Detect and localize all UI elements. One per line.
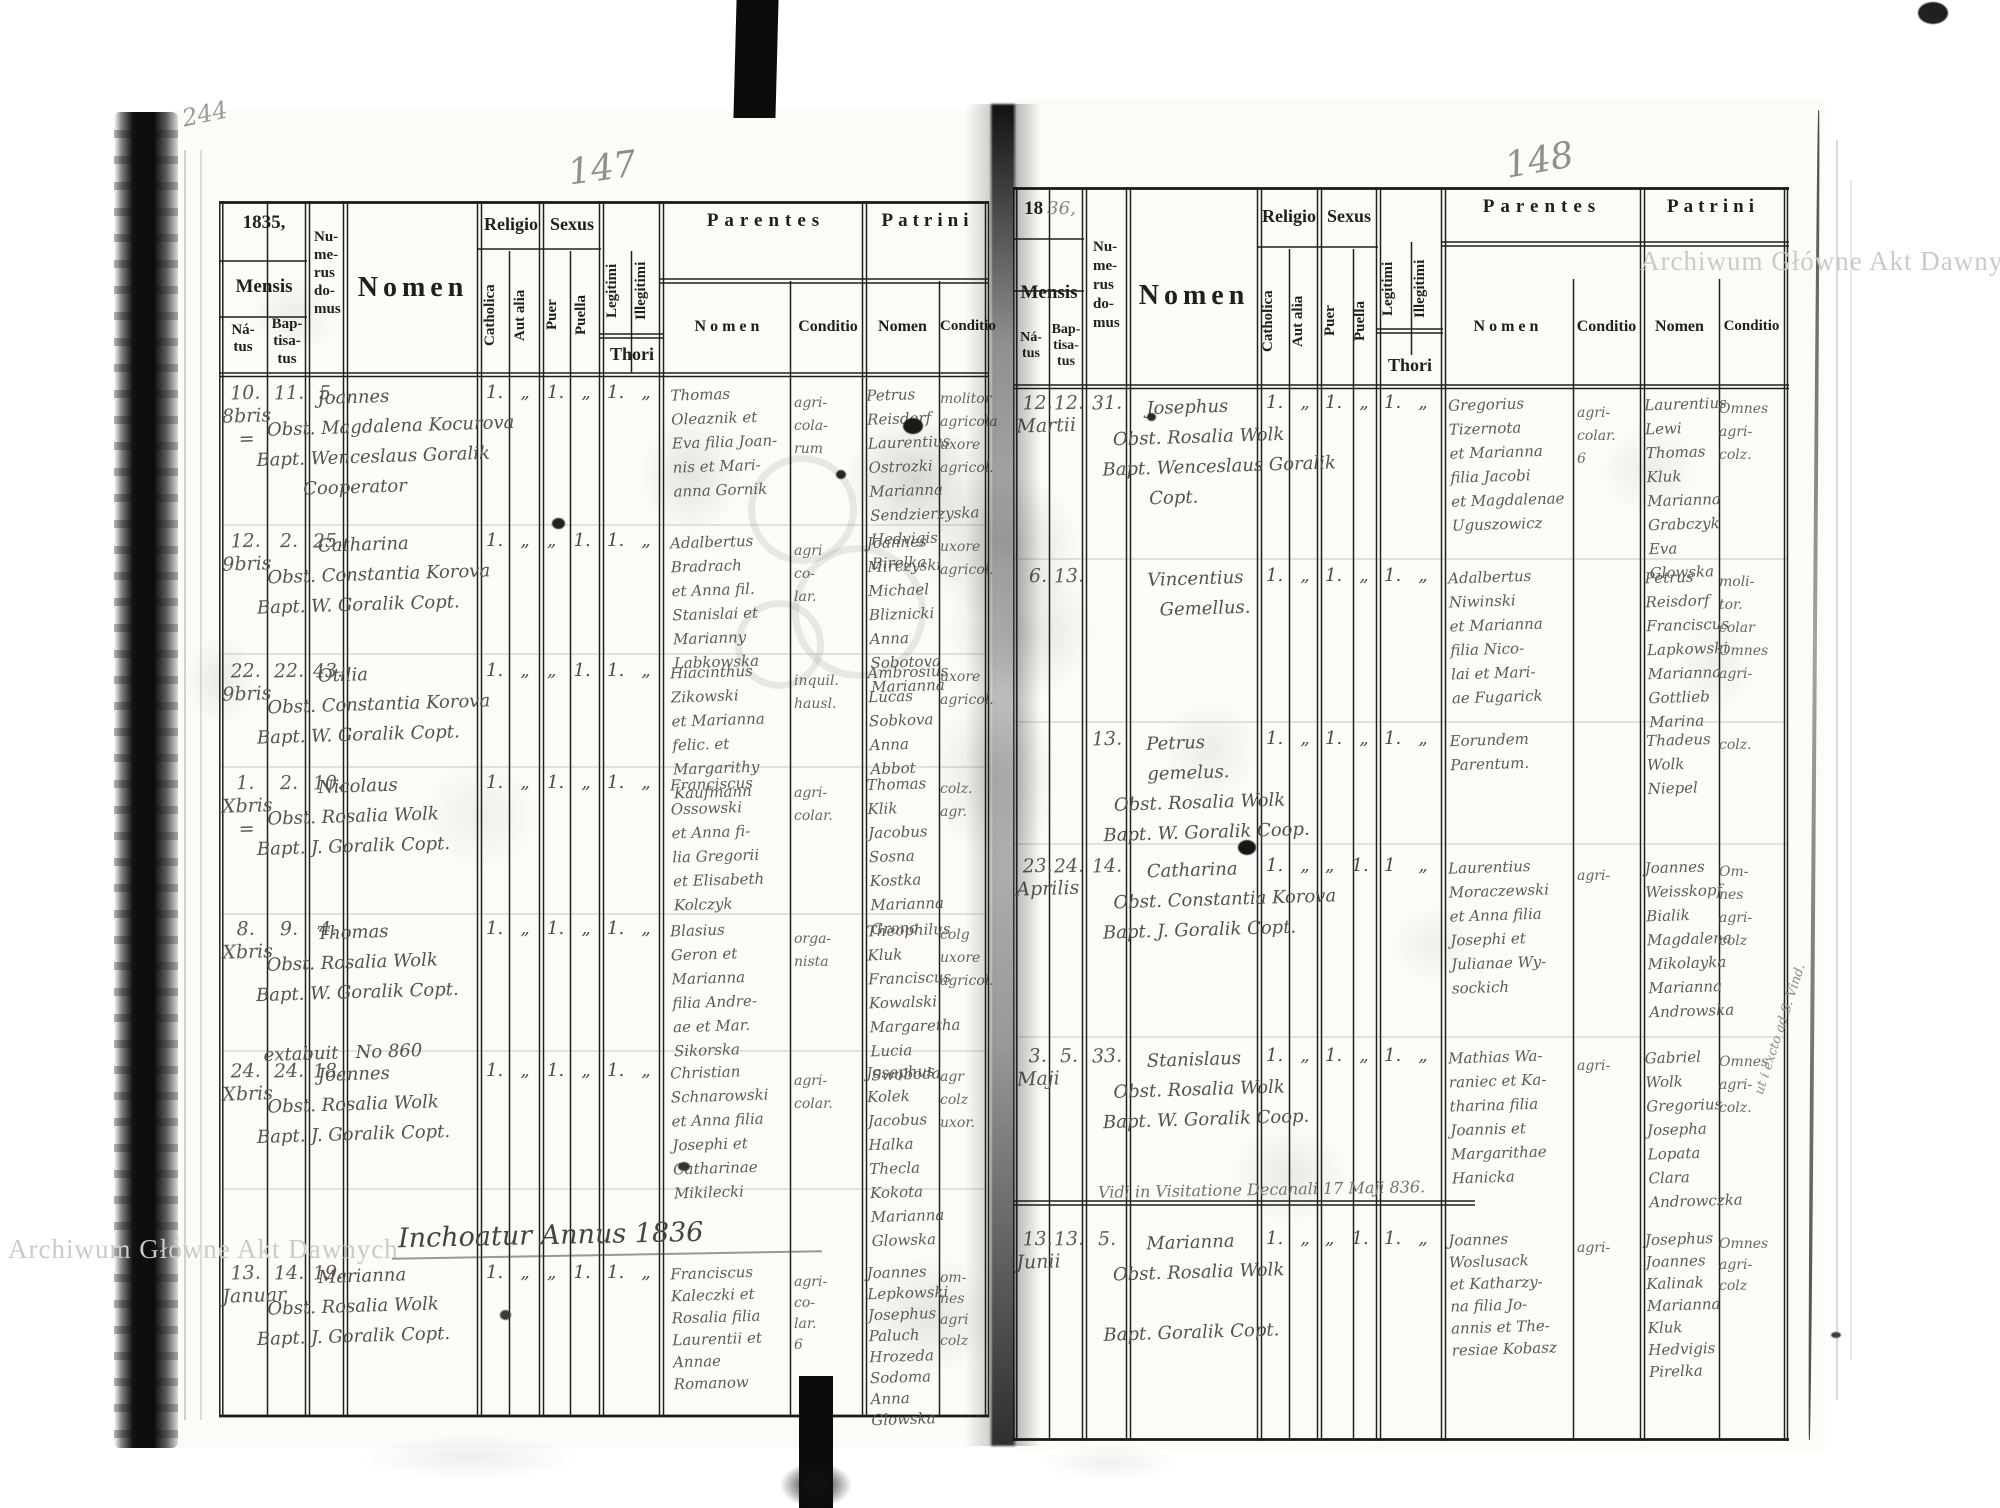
patrini-nomen-header: Nomen <box>865 318 940 336</box>
col-thori-marks: 1. „ <box>607 1262 651 1283</box>
col-nomen-entry: Otilia Obst. Constantia Korova Bapt. W. … <box>255 656 492 753</box>
col-parentes: Adalbertus Niwinski et Marianna filia Ni… <box>1448 564 1546 711</box>
baptisatus-header: Bap- tisa- tus <box>266 316 308 368</box>
col-parentes: Laurentius Moraczewski et Anna filia Jos… <box>1448 853 1553 1000</box>
col-religio-marks: 1. „ <box>486 918 530 939</box>
col-sexus-marks: „ 1. <box>547 1262 591 1283</box>
col-parentes: Thomas Oleaznik et Eva filia Joan- nis e… <box>670 380 779 503</box>
book-strap-shadow <box>780 1462 852 1508</box>
col-sexus-marks: 1. „ <box>1325 392 1369 413</box>
stain <box>360 1435 580 1480</box>
col-patrini-conditio: colz. <box>1719 734 1752 757</box>
col-nomen-entry: Catharina Obst. Constantia Korova Bapt. … <box>255 526 492 623</box>
col-sexus-marks: 1. „ <box>547 382 591 403</box>
col-sexus-marks: „ 1. <box>1325 1228 1369 1249</box>
patrini-conditio-header: Conditio <box>1718 318 1785 335</box>
section-note: Inchoatur Annus 1836 <box>398 1217 704 1254</box>
col-patrini-conditio: moli- tor. colar Omnes agri- <box>1719 571 1768 686</box>
page-stack-line <box>1850 180 1852 1360</box>
col-nomen-entry: Thomas Obst. Rosalia Wolk Bapt. W. Goral… <box>254 915 461 1071</box>
ink-blot <box>500 1310 511 1320</box>
col-nomen-entry: Vincentius Gemellus. <box>1101 563 1251 628</box>
col-parentes-conditio: agri co- lar. <box>794 540 822 609</box>
col-thori-marks: 1. „ <box>607 772 651 793</box>
col-thori-marks: 1. „ <box>607 660 651 681</box>
col-nomen-entry: Marianna Obst. Rosalia Wolk Bapt. Gorali… <box>1100 1225 1286 1351</box>
col-nomen-entry: Nicolaus Obst. Rosalia Wolk Bapt. J. Gor… <box>255 769 451 865</box>
corner-ink-mark <box>1918 2 1948 24</box>
col-sexus-marks: 1. „ <box>1325 565 1369 586</box>
col-parentes: Gregorius Tizernota et Marianna filia Ja… <box>1448 390 1566 537</box>
col-parentes-conditio: agri- colar. <box>794 1070 833 1116</box>
col-religio-marks: 1. „ <box>486 530 530 551</box>
col-patrini: Josephus Kolek Jacobus Halka Thecla Koko… <box>866 1059 945 1253</box>
col-thori-marks: 1. „ <box>1384 1045 1428 1066</box>
col-parentes: Adalbertus Bradrach et Anna fil. Stanisl… <box>670 529 760 676</box>
col-baptisatus: 12. <box>1052 391 1087 415</box>
col-thori-marks: 1. „ <box>1384 565 1428 586</box>
catholica-header: Catholica <box>1260 262 1287 380</box>
col-baptisatus: 5. <box>1052 1044 1087 1068</box>
col-sexus-marks: „ 1. <box>547 660 591 681</box>
col-baptisatus: 13. <box>1052 564 1087 588</box>
ink-blot <box>552 518 565 529</box>
legitimi-header: Legitimi <box>604 248 631 334</box>
col-patrini: Thomas Klik Jacobus Sosna Kostka Mariann… <box>866 771 945 941</box>
col-religio-marks: 1. „ <box>1266 728 1310 749</box>
puer-header: Puer <box>544 256 570 374</box>
thori-header: Thori <box>1379 355 1441 376</box>
col-parentes-conditio: inquil. hausl. <box>794 670 839 716</box>
col-sexus-marks: 1. „ <box>547 918 591 939</box>
ink-blot <box>1147 413 1156 421</box>
col-parentes: Joannes Woslusack et Katharzy- na filia … <box>1448 1226 1557 1361</box>
parentes-header: Parentes <box>1444 196 1640 218</box>
col-patrini-conditio: Om- nes agri- colz <box>1719 861 1752 953</box>
parentes-header: Parentes <box>667 210 865 232</box>
ink-blot <box>1238 840 1256 855</box>
col-religio-marks: 1. „ <box>486 1262 530 1283</box>
stain <box>1040 1445 1180 1480</box>
puella-header: Puella <box>573 256 600 374</box>
col-parentes-conditio: agri- co- lar. 6 <box>794 1272 827 1356</box>
parentes-conditio-header: Conditio <box>1572 318 1641 336</box>
col-nomen-entry: Marianna Obst. Rosalia Wolk Bapt. J. Gor… <box>255 1259 451 1355</box>
baptisatus-header: Bap- tisa- tus <box>1048 322 1084 370</box>
religio-header: Religio <box>1258 206 1320 227</box>
archive-watermark: Archiwum Główne Akt Dawnych <box>1640 246 2000 277</box>
col-religio-marks: 1. „ <box>486 1060 530 1081</box>
natus-header: Ná- tus <box>220 322 266 357</box>
col-parentes: Franciscus Ossowski et Anna fi- lia Greg… <box>670 771 766 918</box>
col-religio-marks: 1. „ <box>486 772 530 793</box>
col-religio-marks: 1. „ <box>1266 1228 1310 1249</box>
religio-header: Religio <box>480 214 542 235</box>
parentes-conditio-header: Conditio <box>791 318 865 336</box>
col-parentes: Franciscus Kaleczki et Rosalia filia Lau… <box>670 1261 764 1396</box>
ink-blot <box>836 470 846 479</box>
col-parentes-conditio: agri- <box>1577 1055 1610 1078</box>
legitimi-header: Legitimi <box>1380 243 1408 335</box>
col-sexus-marks: 1. „ <box>1325 1045 1369 1066</box>
nomen-header: Nomen <box>346 272 480 304</box>
col-sexus-marks: 1. „ <box>547 1060 591 1081</box>
col-patrini: Ambrosius Lucas Sobkova Anna Abbot <box>867 659 951 781</box>
col-thori-marks: 1. „ <box>607 530 651 551</box>
scanned-register-spread: 1835, Mensis Ná- tus Bap- tisa- tus Nu- … <box>0 0 2000 1508</box>
col-religio-marks: 1. „ <box>1266 855 1310 876</box>
gutter-shadow-left <box>965 104 991 1446</box>
col-parentes-conditio: agri- <box>1577 1238 1610 1259</box>
col-thori-marks: 1. „ <box>607 1060 651 1081</box>
col-parentes-conditio: agri- colar. <box>794 782 833 828</box>
col-thori-marks: 1 „ <box>1384 855 1428 876</box>
catholica-header: Catholica <box>482 256 510 374</box>
archive-watermark: Archiwum Główne Akt Dawnych <box>8 1234 399 1265</box>
sexus-header: Sexus <box>542 214 602 235</box>
col-sexus-marks: 1. „ <box>1325 728 1369 749</box>
patrini-header: Patrini <box>1641 196 1785 218</box>
illegitimi-header: Illegitimi <box>1412 243 1440 335</box>
col-sexus-marks: „ 1. <box>1325 855 1369 876</box>
page-stack-line <box>184 150 186 1420</box>
col-patrini: Thadeus Wolk Niepel <box>1646 727 1713 801</box>
nomen-header: Nomen <box>1128 280 1260 312</box>
book-strap-top <box>733 0 778 118</box>
puella-header: Puella <box>1352 262 1378 380</box>
mensis-header: Mensis <box>222 276 306 298</box>
sexus-header: Sexus <box>1320 206 1378 227</box>
col-patrini-conditio: Omnes agri- colz <box>1719 1234 1768 1297</box>
col-parentes: Blasius Geron et Marianna filia Andre- a… <box>670 917 759 1064</box>
col-baptisatus: 24. <box>1052 854 1087 878</box>
col-parentes-conditio: agri- <box>1577 865 1610 888</box>
col-thori-marks: 1. „ <box>1384 392 1428 413</box>
col-thori-marks: 1. „ <box>1384 728 1428 749</box>
parentes-nomen-header: Nomen <box>1444 318 1572 336</box>
col-thori-marks: 1. „ <box>607 918 651 939</box>
col-parentes-conditio: agri- colar. 6 <box>1577 402 1616 471</box>
col-parentes-conditio: orga- nista <box>794 928 831 974</box>
col-religio-marks: 1. „ <box>486 660 530 681</box>
col-patrini-conditio: Omnes agri- colz. <box>1719 398 1768 467</box>
col-sexus-marks: 1. „ <box>547 772 591 793</box>
col-parentes: Christian Schnarowski et Anna filia Jose… <box>670 1059 772 1206</box>
col-nomen-entry: Joannes Obst. Magdalena Kocurova Bapt. W… <box>254 378 517 506</box>
col-thori-marks: 1. „ <box>1384 1228 1428 1249</box>
gutter-shadow-right <box>1015 104 1041 1446</box>
col-religio-marks: 1. „ <box>486 382 530 403</box>
col-sexus-marks: „ 1. <box>547 530 591 551</box>
col-religio-marks: 1. „ <box>1266 392 1310 413</box>
parentes-nomen-header: Nomen <box>667 318 791 336</box>
col-nomen-entry: Joannes Obst. Rosalia Wolk Bapt. J. Gora… <box>255 1057 451 1153</box>
page-stack-line <box>1836 140 1838 1400</box>
aut-alia-header: Aut alia <box>1290 262 1317 380</box>
col-thori-marks: 1. „ <box>607 382 651 403</box>
col-religio-marks: 1. „ <box>1266 1045 1310 1066</box>
patrini-nomen-header: Nomen <box>1641 318 1718 336</box>
ink-blot <box>678 1162 690 1171</box>
aut-alia-header: Aut alia <box>512 256 540 374</box>
ink-blot <box>903 418 923 434</box>
year-label: 1835, <box>222 212 306 234</box>
col-patrini: Josephus Joannes Kalinak Marianna Kluk H… <box>1645 1227 1723 1383</box>
year-handwritten: 36, <box>1047 198 1076 219</box>
col-religio-marks: 1. „ <box>1266 565 1310 586</box>
gutter-shadow <box>991 104 1015 1446</box>
page-stack-line <box>200 150 202 1420</box>
col-baptisatus: 13. <box>1052 1227 1087 1251</box>
col-parentes: Eorundem Parentum. <box>1449 727 1530 777</box>
col-parentes-conditio: agri- cola- rum <box>794 392 828 461</box>
col-parentes: Mathias Wa- raniec et Ka- tharina filia … <box>1448 1044 1550 1191</box>
illegitimi-header: Illegitimi <box>633 248 661 334</box>
thori-header: Thori <box>602 344 662 365</box>
puer-header: Puer <box>1322 262 1350 380</box>
